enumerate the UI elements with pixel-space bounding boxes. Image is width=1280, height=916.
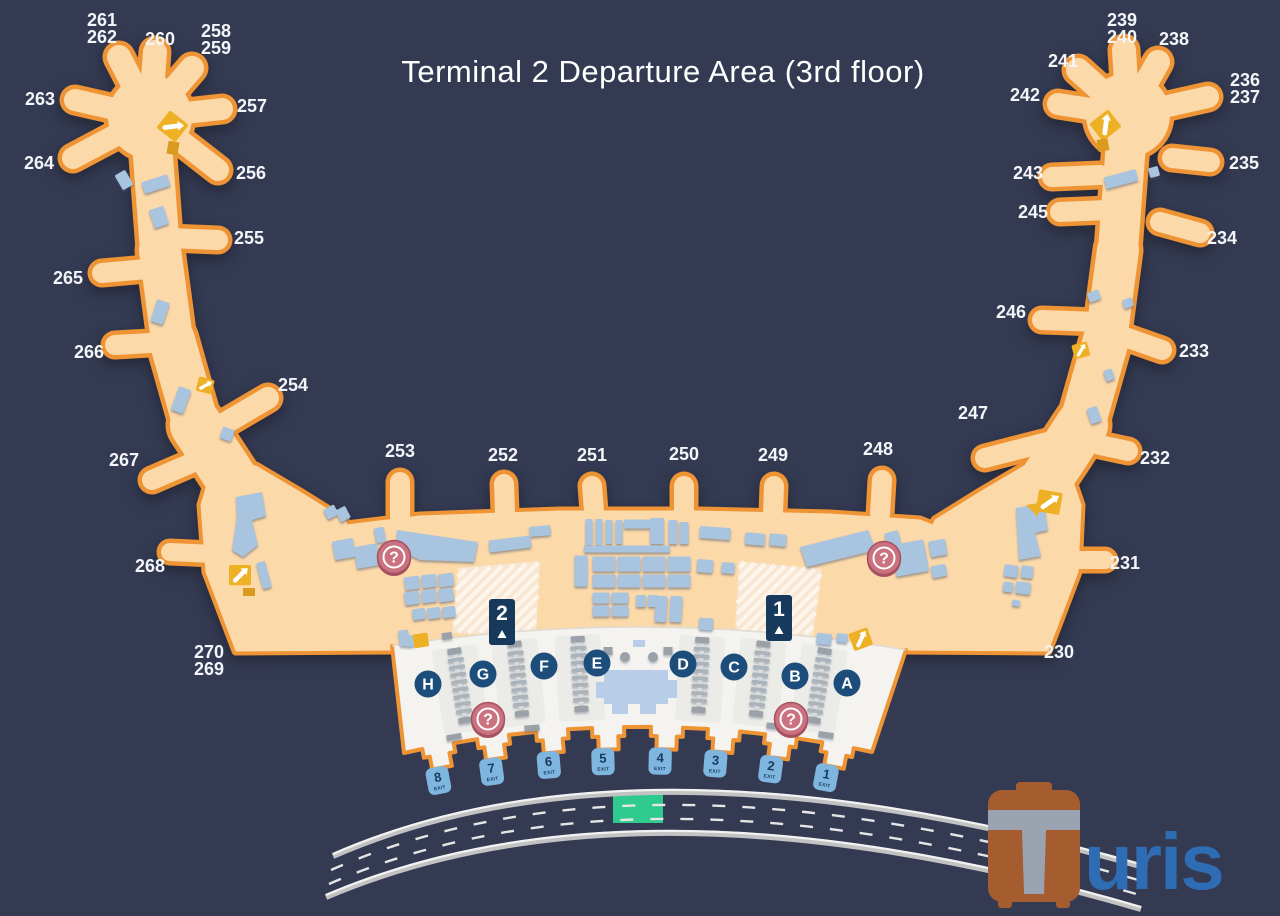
- floor-mat: [442, 632, 453, 640]
- turis-logo: uris: [988, 782, 1223, 908]
- gate-label-249: 249: [758, 445, 788, 465]
- shop-block: [616, 520, 623, 544]
- shop-block: [404, 591, 421, 606]
- escalator-icon: [229, 565, 251, 585]
- entrance-marker-2: 2: [489, 599, 515, 645]
- shop-block: [332, 538, 356, 560]
- escalator-icon: [413, 633, 430, 649]
- shop-block: [1015, 581, 1032, 595]
- pillar: [648, 652, 658, 662]
- shop-block: [769, 533, 787, 546]
- gate-label-265: 265: [53, 268, 83, 288]
- shop-block: [596, 519, 603, 545]
- checkin-island-letter: E: [592, 656, 603, 673]
- shop-block: [654, 596, 667, 623]
- hall-structure: [612, 704, 628, 714]
- pillar: [620, 652, 630, 662]
- hall-structure: [668, 680, 677, 698]
- shop-block: [421, 589, 438, 604]
- shop-block: [618, 575, 641, 588]
- gate-label-256: 256: [236, 163, 266, 183]
- checkin-island-letter: C: [728, 660, 740, 677]
- shop-block: [745, 532, 766, 546]
- checkin-island-letter: H: [422, 677, 434, 694]
- map-title: Terminal 2 Departure Area (3rd floor): [401, 54, 924, 89]
- gate-label-235: 235: [1229, 153, 1259, 173]
- exit-badge-6: 6EXIT: [536, 751, 561, 780]
- floor-mat: [664, 647, 673, 655]
- shop-block: [699, 526, 731, 540]
- gate-label-259: 259: [201, 38, 231, 58]
- shop-block: [442, 606, 456, 619]
- gate-label-251: 251: [577, 445, 607, 465]
- svg-text:?: ?: [786, 712, 796, 729]
- gate-label-245: 245: [1018, 202, 1048, 222]
- terminal-corridor: [1042, 320, 1098, 322]
- shop-block: [669, 520, 678, 544]
- shop-block: [836, 633, 848, 643]
- gate-label-231: 231: [1110, 553, 1140, 573]
- checkin-island-C: C: [721, 654, 748, 681]
- shop-block: [593, 557, 616, 572]
- gate-label-230: 230: [1044, 642, 1074, 662]
- exit-label: EXIT: [654, 766, 666, 772]
- shop-block: [636, 595, 646, 607]
- gate-label-266: 266: [74, 342, 104, 362]
- logo-text: uris: [1084, 817, 1223, 906]
- gate-label-260: 260: [145, 29, 175, 49]
- gate-label-267: 267: [109, 450, 139, 470]
- exit-badge-5: 5EXIT: [591, 748, 615, 776]
- exit-label: EXIT: [543, 769, 555, 776]
- terminal-corridor: [1160, 222, 1200, 233]
- checkin-island-letter: D: [677, 657, 689, 674]
- gate-label-257: 257: [237, 96, 267, 116]
- svg-text:?: ?: [483, 712, 493, 729]
- shop-block: [643, 575, 666, 588]
- terminal-corridor: [102, 268, 158, 273]
- shop-block: [650, 518, 664, 544]
- checkin-island-A: A: [834, 670, 861, 697]
- gate-label-246: 246: [996, 302, 1026, 322]
- shop-block: [438, 573, 455, 588]
- terminal-corridor: [773, 486, 774, 513]
- shop-block: [643, 557, 666, 572]
- gate-label-241: 241: [1048, 51, 1078, 71]
- checkin-island-E: E: [584, 650, 611, 677]
- entrance-marker-number: 2: [496, 602, 508, 625]
- shop-block: [529, 525, 551, 537]
- gate-label-269: 269: [194, 659, 224, 679]
- terminal-corridor: [170, 552, 235, 555]
- shop-block: [1148, 166, 1160, 178]
- gate-label-255: 255: [234, 228, 264, 248]
- terminal-map: 21 ???? HGFEDCBA 8EXIT7EXIT6EXIT5EXIT4EX…: [0, 0, 1280, 916]
- shop-block: [612, 606, 629, 617]
- terminal-corridor: [168, 238, 218, 240]
- gate-label-243: 243: [1013, 163, 1043, 183]
- shop-block: [1002, 581, 1013, 592]
- gate-label-248: 248: [863, 439, 893, 459]
- terminal-corridor: [880, 480, 882, 515]
- info-icon: ?: [471, 703, 505, 739]
- shop-block: [1020, 565, 1034, 579]
- shop-block: [931, 564, 948, 578]
- terminal-corridor: [1172, 158, 1210, 162]
- gate-label-253: 253: [385, 441, 415, 461]
- entrance-marker-1: 1: [766, 595, 792, 641]
- exit-label: EXIT: [597, 766, 609, 772]
- exit-badge-7: 7EXIT: [478, 757, 504, 787]
- terminal-corridor: [592, 486, 594, 511]
- svg-text:?: ?: [389, 550, 399, 567]
- escalator-icon: [1035, 489, 1062, 515]
- terminal-corridor: [1052, 175, 1100, 177]
- shop-block: [1003, 564, 1019, 578]
- checkin-island-letter: B: [789, 669, 801, 686]
- shop-block: [816, 633, 832, 646]
- gate-label-250: 250: [669, 444, 699, 464]
- checkin-island-letter: A: [841, 676, 853, 693]
- shop-block: [697, 559, 714, 573]
- entrance-marker-number: 1: [773, 598, 785, 621]
- shop-block: [606, 520, 613, 544]
- shop-block: [721, 562, 735, 574]
- shop-block: [412, 608, 426, 621]
- shop-block: [680, 522, 689, 544]
- shop-block: [427, 607, 441, 620]
- checkin-island-H: H: [415, 671, 442, 698]
- gate-label-240: 240: [1107, 27, 1137, 47]
- info-icon: ?: [774, 703, 808, 739]
- terminal-corridor: [504, 484, 505, 513]
- checkin-island-G: G: [470, 661, 497, 688]
- exit-number: 4: [656, 750, 664, 765]
- gate-label-237: 237: [1230, 87, 1260, 107]
- checkin-island-B: B: [782, 663, 809, 690]
- logo-suitcase: [988, 782, 1080, 908]
- shop-block: [353, 543, 380, 569]
- shop-block: [593, 575, 616, 588]
- gate-label-264: 264: [24, 153, 54, 173]
- shop-block: [612, 593, 629, 604]
- hall-structure: [633, 640, 645, 647]
- escalator-landing: [166, 141, 179, 156]
- gate-label-233: 233: [1179, 341, 1209, 361]
- terminal-corridor: [1100, 445, 1128, 451]
- exit-badge-3: 3EXIT: [703, 749, 728, 778]
- shop-block: [1012, 599, 1021, 606]
- shop-block: [928, 539, 948, 558]
- info-icon: ?: [377, 541, 411, 577]
- shop-block: [593, 606, 610, 617]
- gate-label-254: 254: [278, 375, 308, 395]
- terminal-corridor: [1060, 210, 1108, 212]
- exit-badge-2: 2EXIT: [757, 754, 783, 784]
- shop-block: [438, 588, 455, 603]
- hall-structure: [596, 682, 605, 698]
- gate-label-242: 242: [1010, 85, 1040, 105]
- gate-label-268: 268: [135, 556, 165, 576]
- checkin-hall: [392, 627, 906, 770]
- exit-number: 6: [544, 754, 552, 770]
- shop-block: [575, 556, 588, 587]
- shop-block: [586, 519, 593, 545]
- shop-block: [618, 557, 641, 572]
- info-icon: ?: [867, 542, 901, 578]
- escalator-landing: [243, 588, 255, 596]
- terminal-corridor: [115, 342, 168, 345]
- shop-block: [624, 520, 650, 529]
- exit-number: 5: [599, 751, 607, 766]
- gate-label-263: 263: [25, 89, 55, 109]
- gate-label-252: 252: [488, 445, 518, 465]
- checkin-island-D: D: [670, 651, 697, 678]
- gate-label-234: 234: [1207, 228, 1237, 248]
- shop-block: [699, 618, 714, 631]
- exit-badge-4: 4EXIT: [648, 747, 672, 775]
- exit-number: 3: [711, 752, 719, 768]
- hall-structure: [640, 704, 656, 714]
- exit-label: EXIT: [709, 768, 721, 775]
- exit-badge-1: 1EXIT: [812, 762, 840, 793]
- shop-block: [593, 593, 610, 604]
- escalator-landing: [1097, 138, 1110, 152]
- shop-block: [421, 574, 438, 589]
- shop-block: [584, 546, 670, 553]
- svg-text:?: ?: [879, 551, 889, 568]
- hall-structure: [604, 670, 668, 704]
- checkin-island-letter: F: [539, 659, 549, 676]
- exit-badge-8: 8EXIT: [425, 765, 453, 796]
- gate-label-247: 247: [958, 403, 988, 423]
- terminal-building: [73, 50, 1210, 651]
- shop-block: [404, 576, 421, 591]
- gate-label-262: 262: [87, 27, 117, 47]
- gate-label-232: 232: [1140, 448, 1170, 468]
- shop-block: [669, 596, 682, 623]
- checkin-island-letter: G: [477, 667, 489, 684]
- shop-block: [668, 557, 691, 572]
- gate-label-238: 238: [1159, 29, 1189, 49]
- shop-block: [668, 575, 691, 588]
- checkin-island-F: F: [531, 653, 558, 680]
